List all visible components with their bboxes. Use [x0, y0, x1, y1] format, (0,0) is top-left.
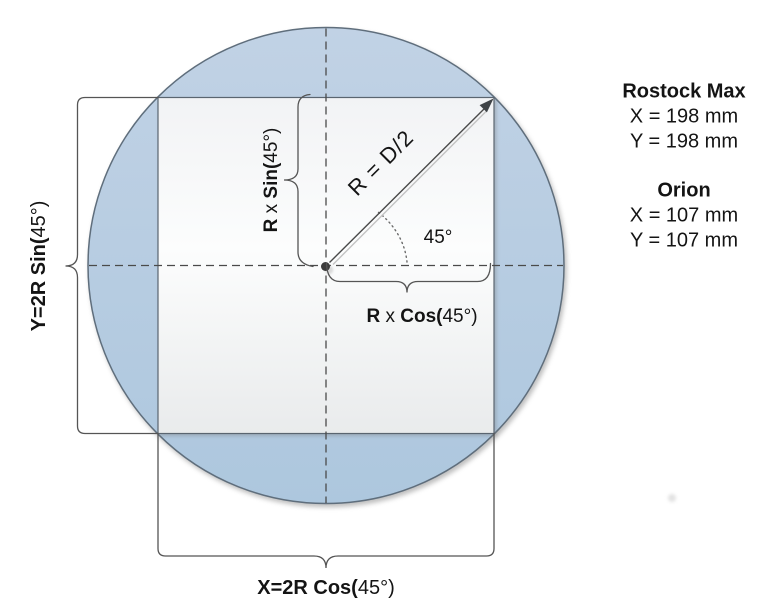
- smudge-dot: [668, 494, 676, 502]
- label-y-dim: Y=2R Sin(45°): [28, 201, 50, 332]
- label-r-cos-part3: Cos(: [400, 306, 443, 327]
- label-r-sin-part2: x: [261, 199, 282, 219]
- diagram-canvas: R = D/2 45° R x Sin(45°) R x Cos(45°) Y=…: [0, 0, 768, 615]
- legend-printer2-name: Orion: [657, 180, 710, 202]
- label-y-dim-part2: 45°): [28, 201, 50, 238]
- label-x-dim-part1: X=2R Cos(: [257, 577, 358, 599]
- label-angle: 45°: [424, 227, 453, 248]
- label-r-cos-part1: R: [366, 306, 380, 327]
- legend-printer1-y: Y = 198 mm: [630, 131, 738, 153]
- legend-printer2-x: X = 107 mm: [630, 205, 738, 227]
- label-r-sin: R x Sin(45°): [261, 128, 282, 233]
- label-r-sin-part4: 45°): [261, 128, 282, 163]
- label-r-cos: R x Cos(45°): [366, 306, 477, 327]
- label-r-cos-part2: x: [380, 306, 400, 327]
- delta-printer-bed-diagram: R = D/2 45° R x Sin(45°) R x Cos(45°) Y=…: [0, 0, 768, 615]
- printer-size-legend: Rostock Max X = 198 mm Y = 198 mm Orion …: [622, 81, 745, 252]
- label-x-dim-part2: 45°): [358, 577, 395, 599]
- label-x-dim: X=2R Cos(45°): [257, 577, 395, 599]
- label-r-sin-part3: Sin(: [261, 162, 282, 199]
- legend-printer2-y: Y = 107 mm: [630, 230, 738, 252]
- label-r-cos-part4: 45°): [442, 306, 477, 327]
- legend-printer1-x: X = 198 mm: [630, 106, 738, 128]
- legend-printer1-name: Rostock Max: [622, 81, 745, 103]
- label-r-sin-part1: R: [261, 218, 282, 232]
- center-dot: [321, 262, 330, 271]
- label-y-dim-part1: Y=2R Sin(: [28, 237, 50, 331]
